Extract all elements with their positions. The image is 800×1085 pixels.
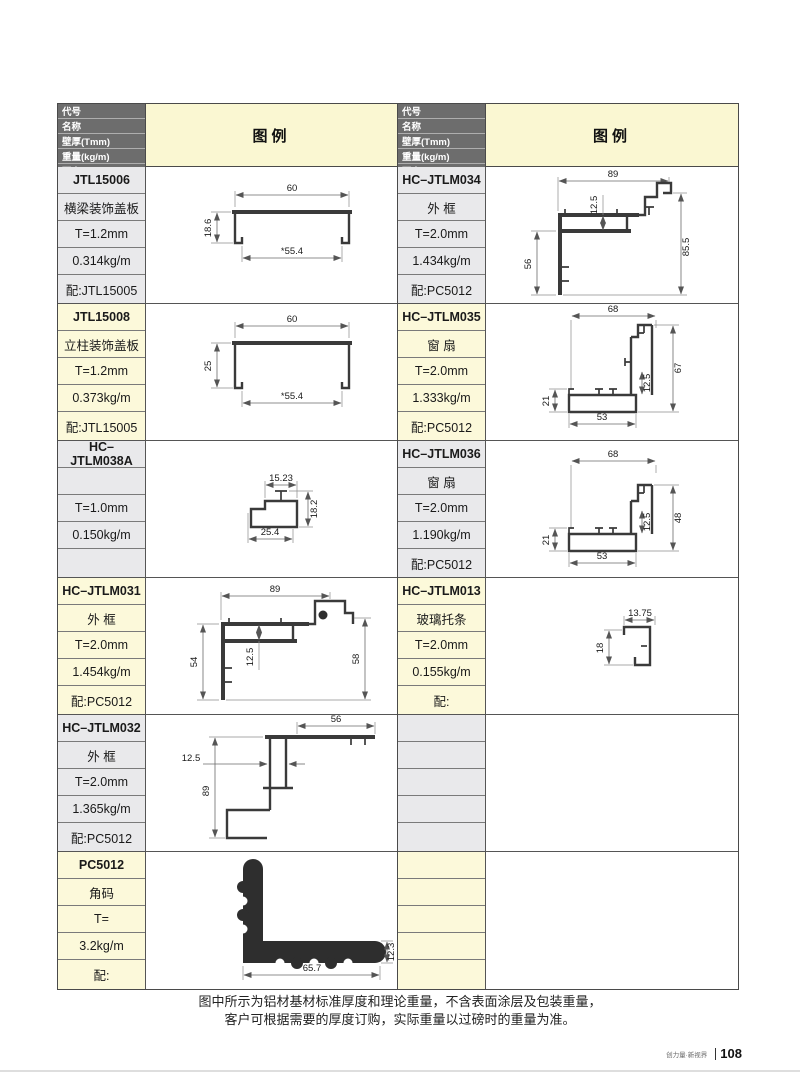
dimension-label: 54 — [189, 657, 200, 668]
name-cell — [58, 468, 145, 495]
thickness-cell: T=1.2mm — [58, 221, 145, 248]
profile-diagram: 56 12.5 89 — [146, 715, 397, 851]
dimension-label: 67 — [673, 363, 684, 374]
match-cell: 配:PC5012 — [398, 275, 485, 303]
code-cell: HC–JTLM031 — [58, 578, 145, 605]
header-label-column: 代号 名称 壁厚(Tmm) 重量(kg/m) 配套 — [58, 104, 146, 166]
profile-diagram-empty — [486, 715, 738, 851]
match-cell: 配:PC5012 — [398, 549, 485, 577]
profile-diagram: 68 67 12.5 — [486, 304, 738, 440]
weight-cell — [398, 796, 485, 823]
match-cell — [398, 823, 485, 851]
profile-block-hc-jtlm038a: HC–JTLM038A T=1.0mm 0.150kg/m 15.23 — [58, 441, 397, 578]
dimension-label: 12.5 — [181, 753, 200, 764]
dimension-label: 12.5 — [642, 374, 653, 393]
dimension-label: 21 — [541, 396, 552, 407]
page-footer: 创力量·新视界 108 — [666, 1046, 742, 1061]
dimension-label: *55.4 — [280, 391, 302, 402]
profile-table-right: 代号 名称 壁厚(Tmm) 重量(kg/m) 配套 图例 HC–JTLM034 … — [398, 103, 739, 990]
weight-cell — [398, 933, 485, 960]
thickness-cell: T=1.0mm — [58, 495, 145, 522]
code-cell — [398, 715, 485, 742]
match-cell: 配:JTL15005 — [58, 412, 145, 440]
thickness-cell: T=2.0mm — [398, 632, 485, 659]
profile-diagram: 60 25 *55.4 — [146, 304, 397, 440]
thickness-cell — [398, 906, 485, 933]
match-cell: 配: — [398, 686, 485, 714]
header-weight: 重量(kg/m) — [58, 149, 145, 164]
profile-diagram: 60 18.6 *55.4 — [146, 167, 397, 303]
dimension-label: 18 — [595, 643, 606, 654]
dimension-label: 58 — [351, 654, 362, 665]
profile-block-pc5012: PC5012 角码 T= 3.2kg/m 配: — [58, 852, 397, 989]
profile-diagram: 15.23 18.2 25.4 — [146, 441, 397, 577]
thickness-cell: T=2.0mm — [398, 358, 485, 385]
weight-cell: 0.150kg/m — [58, 522, 145, 549]
thickness-cell: T=2.0mm — [58, 769, 145, 796]
dimension-label: 56 — [330, 715, 341, 725]
thickness-cell: T=1.2mm — [58, 358, 145, 385]
profile-diagram-empty — [486, 852, 738, 989]
match-cell: 配:JTL15005 — [58, 275, 145, 303]
code-cell: HC–JTLM035 — [398, 304, 485, 331]
code-cell: JTL15006 — [58, 167, 145, 194]
page-number: 108 — [720, 1046, 742, 1061]
profile-diagram: 65.7 12.3 — [146, 852, 397, 989]
match-cell: 配:PC5012 — [58, 686, 145, 714]
catalog-page: { "header": { "rows": ["代号", "名称", "壁厚(T… — [0, 0, 800, 1085]
header-name: 名称 — [398, 119, 485, 134]
header-weight: 重量(kg/m) — [398, 149, 485, 164]
table-header: 代号 名称 壁厚(Tmm) 重量(kg/m) 配套 图例 — [398, 104, 738, 167]
dimension-label: 56 — [523, 259, 534, 270]
weight-cell: 0.373kg/m — [58, 385, 145, 412]
profile-block-hc-jtlm013: HC–JTLM013 玻璃托条 T=2.0mm 0.155kg/m 配: 13.… — [398, 578, 738, 715]
profile-block-jtl15006: JTL15006 横梁装饰盖板 T=1.2mm 0.314kg/m 配:JTL1… — [58, 167, 397, 304]
legend-header: 图例 — [486, 104, 738, 166]
name-cell: 角码 — [58, 879, 145, 906]
name-cell: 窗 扇 — [398, 468, 485, 495]
dimension-label: 18.6 — [203, 219, 214, 238]
header-code: 代号 — [398, 104, 485, 119]
code-cell: HC–JTLM038A — [58, 441, 145, 468]
profile-table-left: 代号 名称 壁厚(Tmm) 重量(kg/m) 配套 图例 JTL15006 横梁… — [57, 103, 398, 990]
weight-cell: 1.454kg/m — [58, 659, 145, 686]
profile-block-hc-jtlm034: HC–JTLM034 外 框 T=2.0mm 1.434kg/m 配:PC501… — [398, 167, 738, 304]
profile-block-hc-jtlm031: HC–JTLM031 外 框 T=2.0mm 1.454kg/m 配:PC501… — [58, 578, 397, 715]
dimension-label: 60 — [286, 314, 297, 325]
profile-block-empty-1 — [398, 715, 738, 852]
spec-tables: 代号 名称 壁厚(Tmm) 重量(kg/m) 配套 图例 JTL15006 横梁… — [57, 103, 739, 990]
dimension-label: 60 — [286, 183, 297, 194]
header-name: 名称 — [58, 119, 145, 134]
weight-cell: 0.314kg/m — [58, 248, 145, 275]
dimension-label: 48 — [673, 513, 684, 524]
profile-diagram: 13.75 18 — [486, 578, 738, 714]
dimension-label: 15.23 — [269, 473, 293, 484]
code-cell: HC–JTLM013 — [398, 578, 485, 605]
dimension-label: 21 — [541, 535, 552, 546]
dimension-label: 53 — [597, 412, 608, 423]
match-cell: 配:PC5012 — [398, 412, 485, 440]
name-cell — [398, 742, 485, 769]
dimension-label: 85.5 — [681, 238, 692, 257]
weight-cell: 0.155kg/m — [398, 659, 485, 686]
thickness-cell: T=2.0mm — [398, 495, 485, 522]
code-cell: HC–JTLM036 — [398, 441, 485, 468]
footer-note-line2: 客户可根据需要的厚度订购，实际重量以过磅时的重量为准。 — [0, 1011, 800, 1029]
weight-cell: 1.190kg/m — [398, 522, 485, 549]
dimension-label: 65.7 — [302, 963, 321, 974]
match-cell — [58, 549, 145, 577]
profile-block-hc-jtlm036: HC–JTLM036 窗 扇 T=2.0mm 1.190kg/m 配:PC501… — [398, 441, 738, 578]
page-edge-line — [0, 1070, 800, 1072]
dimension-label: *55.4 — [280, 246, 302, 257]
thickness-cell: T=2.0mm — [58, 632, 145, 659]
name-cell: 窗 扇 — [398, 331, 485, 358]
dimension-label: 12.5 — [589, 196, 600, 215]
code-cell — [398, 852, 485, 879]
profile-block-hc-jtlm032: HC–JTLM032 外 框 T=2.0mm 1.365kg/m 配:PC501… — [58, 715, 397, 852]
code-cell: HC–JTLM034 — [398, 167, 485, 194]
dimension-label: 13.75 — [628, 608, 652, 619]
dimension-label: 12.5 — [245, 648, 256, 667]
dimension-label: 12.5 — [642, 513, 653, 532]
dimension-label: 53 — [597, 551, 608, 562]
legend-header: 图例 — [146, 104, 397, 166]
dimension-label: 89 — [608, 169, 619, 180]
thickness-cell: T=2.0mm — [398, 221, 485, 248]
profile-diagram: 89 12.5 85.5 — [486, 167, 738, 303]
footer-note-line1: 图中所示为铝材基材标准厚度和理论重量，不含表面涂层及包装重量， — [0, 993, 800, 1011]
name-cell: 外 框 — [58, 605, 145, 632]
dimension-label: 25.4 — [260, 527, 279, 538]
header-thickness: 壁厚(Tmm) — [398, 134, 485, 149]
thickness-cell — [398, 769, 485, 796]
dimension-label: 12.3 — [386, 942, 397, 961]
dimension-label: 89 — [269, 584, 280, 595]
code-cell: PC5012 — [58, 852, 145, 879]
dimension-label: 68 — [608, 449, 619, 460]
name-cell: 外 框 — [398, 194, 485, 221]
name-cell — [398, 879, 485, 906]
footer-note: 图中所示为铝材基材标准厚度和理论重量，不含表面涂层及包装重量， 客户可根据需要的… — [0, 993, 800, 1029]
thickness-cell: T= — [58, 906, 145, 933]
profile-block-empty-2 — [398, 852, 738, 989]
table-header: 代号 名称 壁厚(Tmm) 重量(kg/m) 配套 图例 — [58, 104, 397, 167]
dimension-label: 89 — [201, 786, 212, 797]
match-cell — [398, 960, 485, 989]
code-cell: HC–JTLM032 — [58, 715, 145, 742]
dimension-label: 68 — [608, 304, 619, 315]
weight-cell: 1.434kg/m — [398, 248, 485, 275]
profile-block-hc-jtlm035: HC–JTLM035 窗 扇 T=2.0mm 1.333kg/m 配:PC501… — [398, 304, 738, 441]
name-cell: 立柱装饰盖板 — [58, 331, 145, 358]
weight-cell: 3.2kg/m — [58, 933, 145, 960]
match-cell: 配:PC5012 — [58, 823, 145, 851]
weight-cell: 1.365kg/m — [58, 796, 145, 823]
profile-diagram: 89 54 12.5 — [146, 578, 397, 714]
header-thickness: 壁厚(Tmm) — [58, 134, 145, 149]
header-label-column: 代号 名称 壁厚(Tmm) 重量(kg/m) 配套 — [398, 104, 486, 166]
profile-diagram: 68 48 12.5 21 — [486, 441, 738, 577]
weight-cell: 1.333kg/m — [398, 385, 485, 412]
header-code: 代号 — [58, 104, 145, 119]
name-cell: 横梁装饰盖板 — [58, 194, 145, 221]
name-cell: 外 框 — [58, 742, 145, 769]
footer-divider — [715, 1048, 716, 1060]
code-cell: JTL15008 — [58, 304, 145, 331]
name-cell: 玻璃托条 — [398, 605, 485, 632]
brand-slogan: 创力量·新视界 — [666, 1049, 707, 1059]
dimension-label: 18.2 — [309, 500, 320, 519]
profile-block-jtl15008: JTL15008 立柱装饰盖板 T=1.2mm 0.373kg/m 配:JTL1… — [58, 304, 397, 441]
match-cell: 配: — [58, 960, 145, 989]
dimension-label: 25 — [203, 361, 214, 372]
